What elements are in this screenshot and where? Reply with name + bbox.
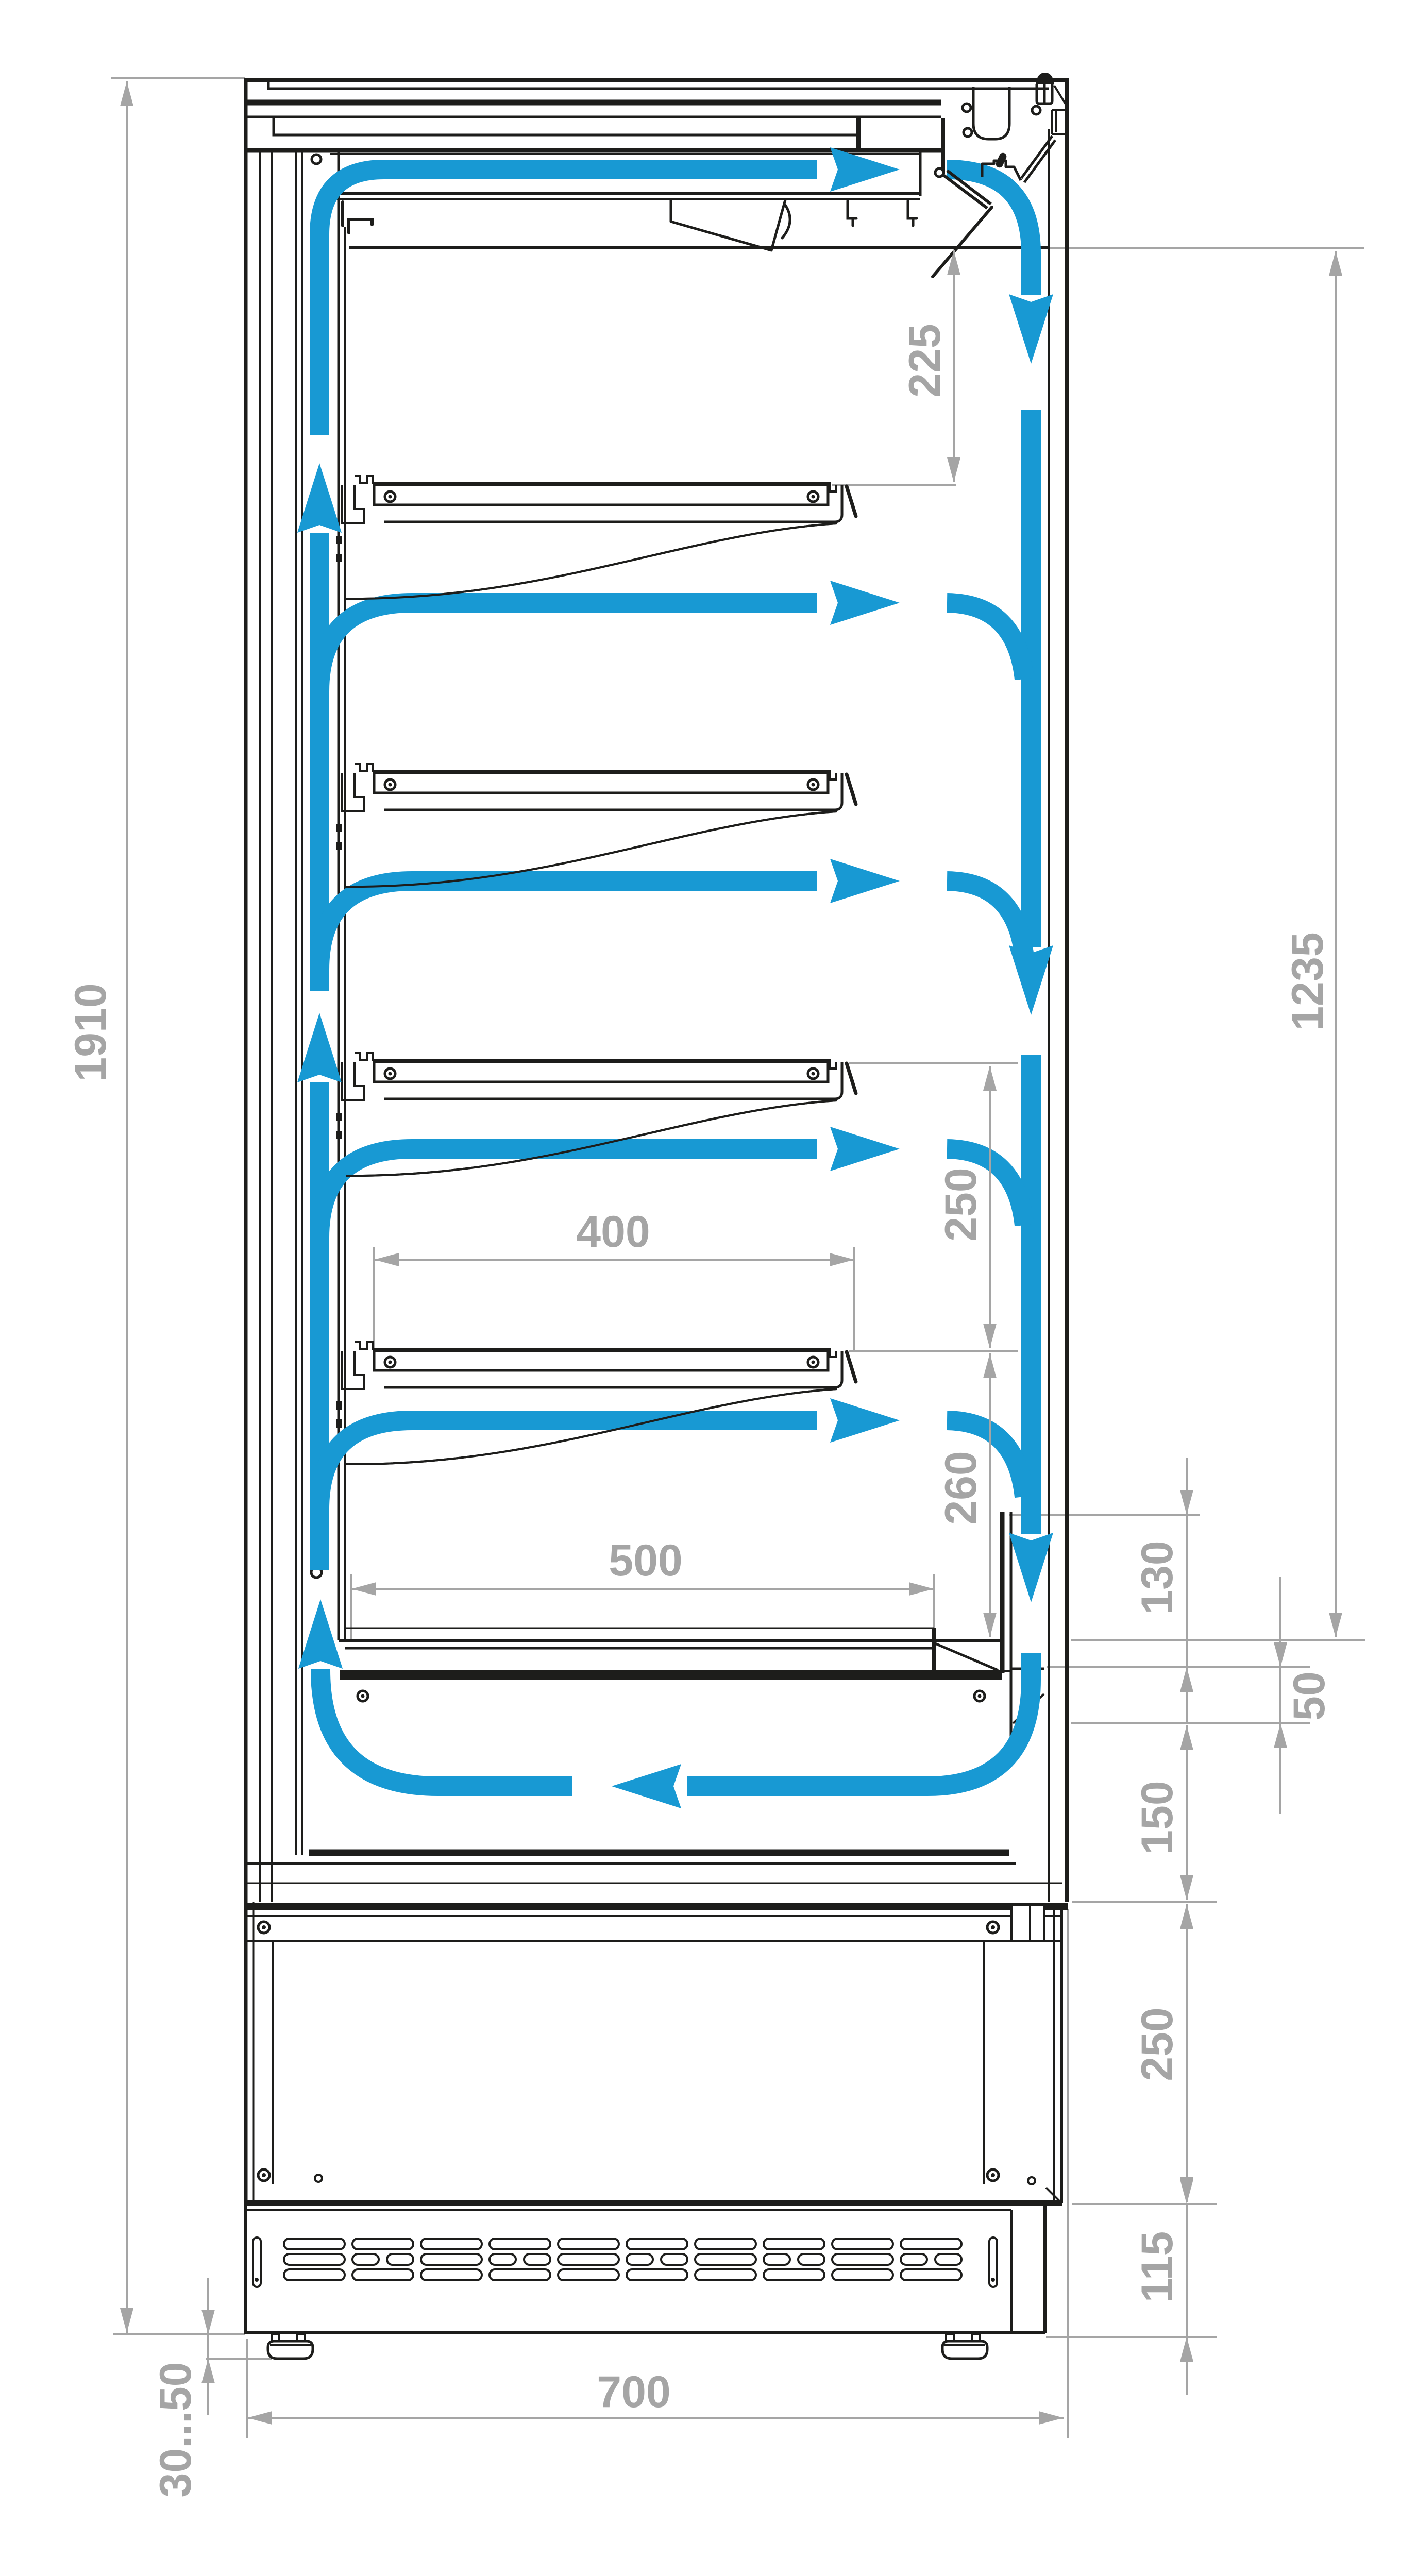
svg-text:250: 250 bbox=[1133, 2007, 1182, 2081]
svg-text:260: 260 bbox=[936, 1451, 986, 1525]
svg-text:1910: 1910 bbox=[66, 983, 115, 1081]
svg-text:30...50: 30...50 bbox=[151, 2362, 200, 2498]
svg-text:250: 250 bbox=[936, 1167, 986, 1242]
svg-text:700: 700 bbox=[597, 2367, 671, 2417]
svg-text:225: 225 bbox=[900, 324, 950, 398]
svg-text:1235: 1235 bbox=[1283, 932, 1332, 1030]
svg-text:150: 150 bbox=[1133, 1781, 1182, 1855]
svg-text:50: 50 bbox=[1285, 1671, 1334, 1721]
svg-text:400: 400 bbox=[576, 1207, 650, 1257]
svg-text:500: 500 bbox=[609, 1536, 683, 1585]
svg-text:130: 130 bbox=[1133, 1540, 1182, 1615]
svg-text:115: 115 bbox=[1133, 2231, 1182, 2303]
